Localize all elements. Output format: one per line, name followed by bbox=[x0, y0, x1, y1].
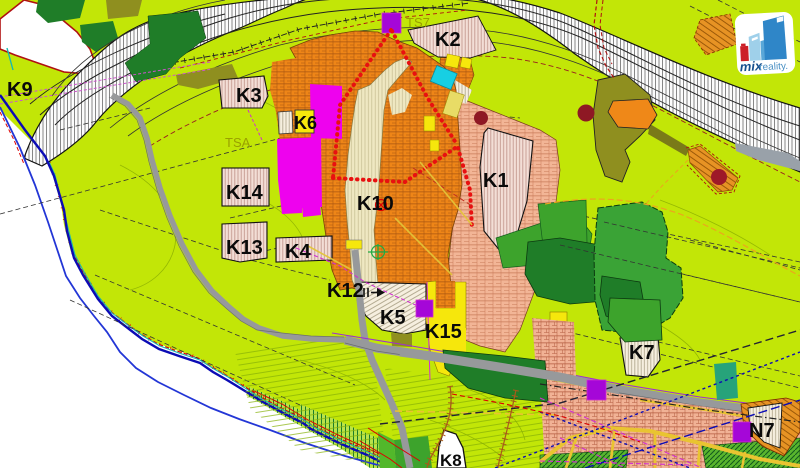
svg-text:K13: K13 bbox=[226, 237, 263, 259]
svg-text:K6: K6 bbox=[294, 113, 317, 133]
svg-text:K12: K12 bbox=[327, 280, 364, 302]
svg-text:K3: K3 bbox=[236, 85, 262, 107]
svg-text:K1: K1 bbox=[483, 170, 509, 192]
svg-text:reality.: reality. bbox=[759, 61, 788, 73]
svg-text:K10: K10 bbox=[357, 193, 394, 215]
svg-text:TS7: TS7 bbox=[406, 15, 430, 30]
svg-text:K5: K5 bbox=[380, 307, 406, 329]
svg-text:K2: K2 bbox=[435, 29, 461, 51]
svg-text:K15: K15 bbox=[425, 321, 462, 343]
svg-text:K9: K9 bbox=[7, 79, 33, 101]
svg-text:N7: N7 bbox=[749, 420, 775, 442]
svg-text:K4: K4 bbox=[285, 241, 311, 263]
svg-text:K7: K7 bbox=[629, 342, 655, 364]
svg-text:K8: K8 bbox=[440, 451, 462, 468]
svg-text:TSA: TSA bbox=[225, 135, 251, 150]
svg-text:K14: K14 bbox=[226, 182, 264, 204]
